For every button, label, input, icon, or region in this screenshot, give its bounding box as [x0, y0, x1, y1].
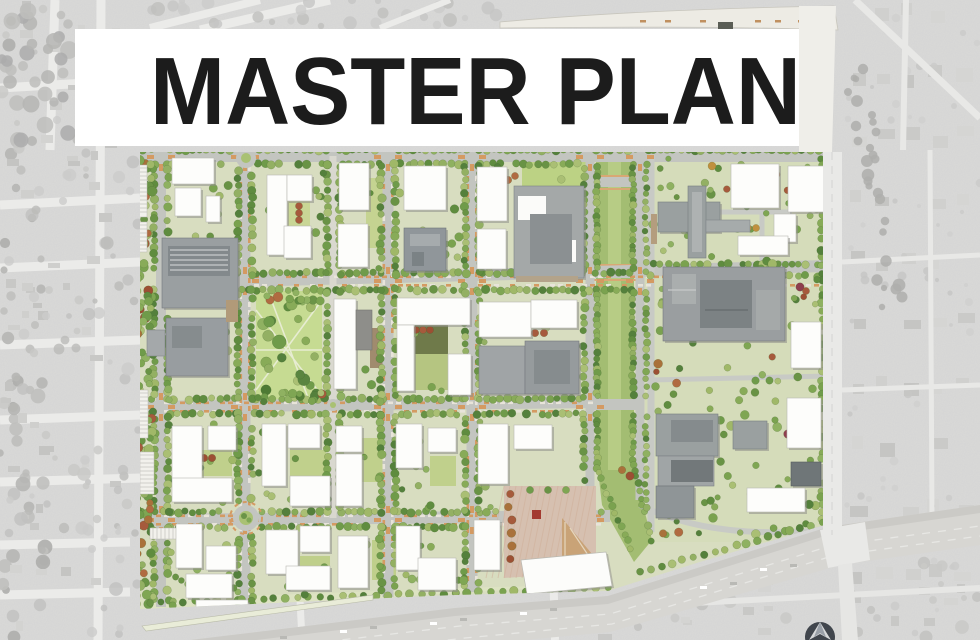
svg-text:MASTER PLAN: MASTER PLAN: [150, 38, 801, 145]
